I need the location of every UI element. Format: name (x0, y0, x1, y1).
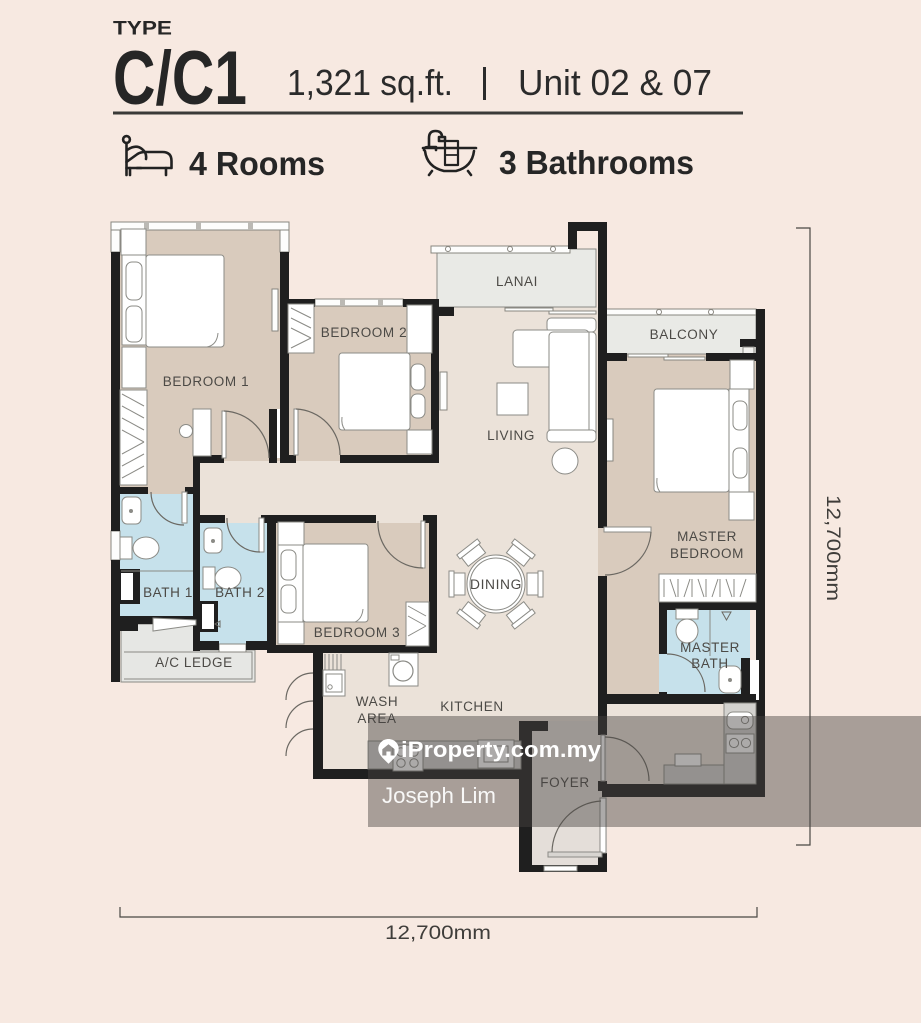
svg-text:LIVING: LIVING (487, 428, 535, 443)
svg-text:BATH 2: BATH 2 (215, 585, 265, 600)
svg-text:3 Bathrooms: 3 Bathrooms (499, 145, 694, 182)
svg-text:MASTER: MASTER (680, 640, 740, 655)
svg-text:MASTER: MASTER (677, 529, 737, 544)
svg-text:WASH: WASH (356, 694, 398, 709)
svg-text:BALCONY: BALCONY (650, 327, 719, 342)
svg-text:Unit 02 & 07: Unit 02 & 07 (518, 62, 712, 103)
svg-text:BEDROOM: BEDROOM (670, 546, 744, 561)
svg-text:iProperty.com.my: iProperty.com.my (401, 737, 602, 762)
svg-text:DINING: DINING (470, 577, 522, 592)
svg-text:BATH: BATH (691, 656, 728, 671)
svg-text:BEDROOM 3: BEDROOM 3 (314, 625, 400, 640)
svg-text:BATH 1: BATH 1 (143, 585, 193, 600)
svg-text:BEDROOM 2: BEDROOM 2 (321, 325, 407, 340)
svg-text:LANAI: LANAI (496, 274, 538, 289)
svg-text:1,321 sq.ft.: 1,321 sq.ft. (287, 62, 453, 103)
svg-text:12,700mm: 12,700mm (822, 495, 844, 601)
svg-text:Joseph Lim: Joseph Lim (382, 783, 496, 808)
svg-text:BEDROOM 1: BEDROOM 1 (163, 374, 249, 389)
svg-text:KITCHEN: KITCHEN (440, 699, 503, 714)
svg-text:A/C LEDGE: A/C LEDGE (155, 655, 232, 670)
svg-text:12,700mm: 12,700mm (385, 922, 491, 944)
svg-text:4 Rooms: 4 Rooms (189, 146, 325, 183)
svg-text:C/C1: C/C1 (113, 36, 247, 121)
